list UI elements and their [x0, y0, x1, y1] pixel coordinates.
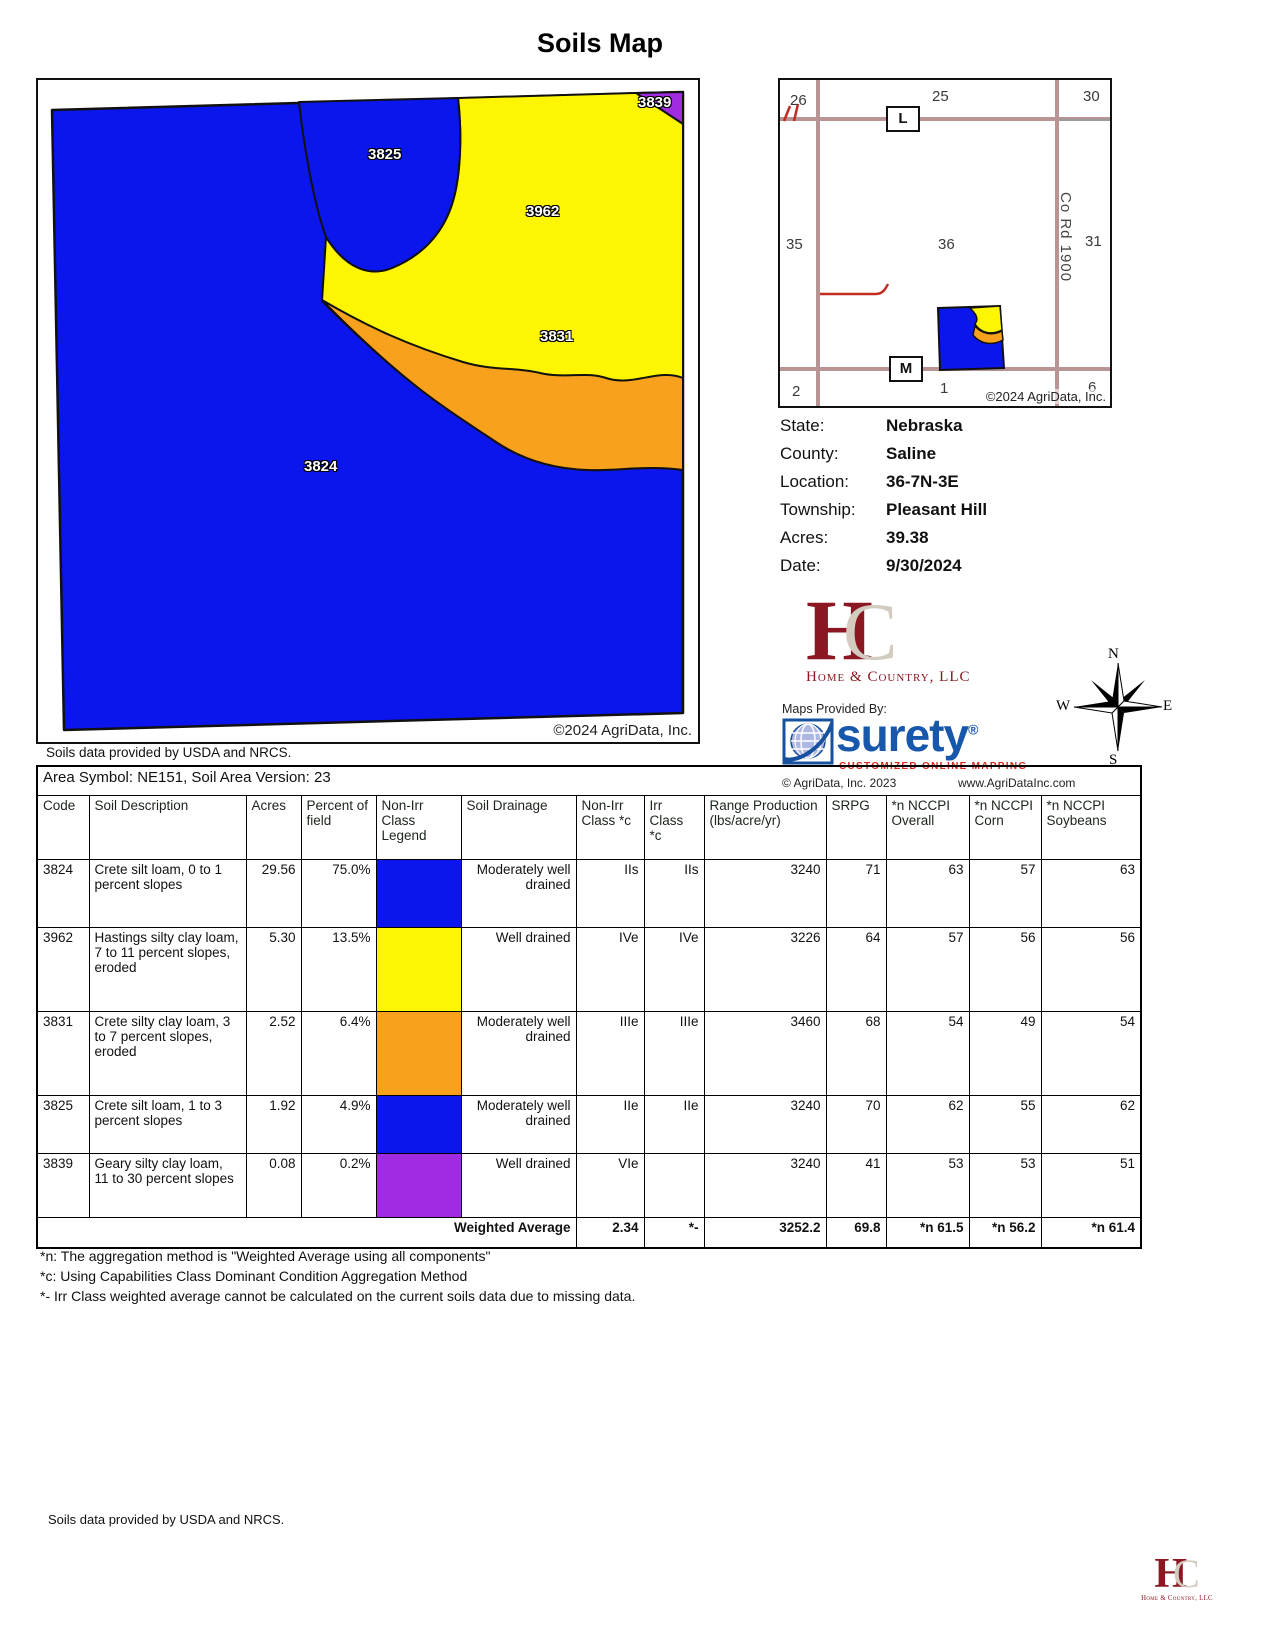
col-header-legend: Non-Irr Class Legend: [376, 796, 461, 860]
info-label: Location:: [780, 468, 886, 496]
table-area-header-row: Area Symbol: NE151, Soil Area Version: 2…: [37, 766, 1141, 796]
section-number: 36: [938, 236, 955, 253]
footnote: *c: Using Capabilities Class Dominant Co…: [40, 1266, 635, 1286]
weighted-average-row: Weighted Average 2.34 *- 3252.2 69.8 *n …: [37, 1218, 1141, 1248]
col-header-nccpi-overall: *n NCCPI Overall: [886, 796, 969, 860]
cell-range: 3240: [704, 860, 826, 928]
col-header-acres: Acres: [246, 796, 301, 860]
cell-acres: 0.08: [246, 1154, 301, 1218]
cell-code: 3831: [37, 1012, 89, 1096]
map-copyright: ©2024 AgriData, Inc.: [553, 722, 692, 739]
cell-nonirr: IIe: [576, 1096, 644, 1154]
cell-irr: IIs: [644, 860, 704, 928]
cell-drainage: Moderately well drained: [461, 1096, 576, 1154]
section-number: 35: [786, 236, 803, 253]
cell-soybeans: 62: [1041, 1096, 1141, 1154]
col-header-nccpi-corn: *n NCCPI Corn: [969, 796, 1041, 860]
cell-acres: 29.56: [246, 860, 301, 928]
col-header-percent: Percent of field: [301, 796, 376, 860]
red-road-mark: [820, 284, 888, 294]
info-row: Date:9/30/2024: [780, 552, 987, 580]
hc-logo-name: Home & Country, LLC: [806, 669, 971, 686]
cell-soybeans: 56: [1041, 928, 1141, 1012]
cell-drainage: Moderately well drained: [461, 860, 576, 928]
hc-logo-c: C: [1173, 1551, 1200, 1596]
usda-note: Soils data provided by USDA and NRCS.: [46, 745, 291, 760]
cell-corn: 55: [969, 1096, 1041, 1154]
cell-overall: *n 61.5: [886, 1218, 969, 1248]
info-value: 36-7N-3E: [886, 472, 959, 491]
info-label: Date:: [780, 552, 886, 580]
compass-star: [1068, 651, 1168, 763]
cell-percent: 4.9%: [301, 1096, 376, 1154]
cell-legend-swatch: [376, 1154, 461, 1218]
cell-nonirr: IIIe: [576, 1012, 644, 1096]
info-row: Acres:39.38: [780, 524, 987, 552]
cell-description: Hastings silty clay loam, 7 to 11 percen…: [89, 928, 246, 1012]
col-header-drainage: Soil Drainage: [461, 796, 576, 860]
road-marker-l: L: [886, 106, 920, 132]
cell-legend-swatch: [376, 1096, 461, 1154]
cell-legend-swatch: [376, 1012, 461, 1096]
cell-range: 3226: [704, 928, 826, 1012]
soils-map: 3825 3962 3831 3824 3839 ©2024 AgriData,…: [36, 78, 700, 744]
cell-srpg: 64: [826, 928, 886, 1012]
soil-region-label: 3831: [540, 328, 573, 345]
cell-code: 3839: [37, 1154, 89, 1218]
info-label: State:: [780, 412, 886, 440]
info-value: Nebraska: [886, 416, 963, 435]
cell-irr: *-: [644, 1218, 704, 1248]
cell-acres: 5.30: [246, 928, 301, 1012]
cell-drainage: Well drained: [461, 928, 576, 1012]
cell-percent: 75.0%: [301, 860, 376, 928]
area-symbol-header: Area Symbol: NE151, Soil Area Version: 2…: [37, 766, 1141, 796]
cell-overall: 57: [886, 928, 969, 1012]
field-inset: [938, 306, 1004, 370]
cell-irr: IVe: [644, 928, 704, 1012]
road-name-label: Co Rd 1900: [1057, 192, 1074, 282]
usda-note-footer: Soils data provided by USDA and NRCS.: [48, 1512, 284, 1527]
compass-east-label: E: [1163, 698, 1172, 715]
soil-region-label: 3825: [368, 146, 401, 163]
cell-code: 3824: [37, 860, 89, 928]
info-value: Pleasant Hill: [886, 500, 987, 519]
page-title: Soils Map: [0, 28, 1200, 59]
cell-acres: 1.92: [246, 1096, 301, 1154]
surety-wordmark: surety®: [836, 708, 977, 762]
table-row: 3839 Geary silty clay loam, 11 to 30 per…: [37, 1154, 1141, 1218]
road-marker-m: M: [889, 356, 923, 382]
footnote: *- Irr Class weighted average cannot be …: [40, 1286, 635, 1306]
cell-overall: 62: [886, 1096, 969, 1154]
cell-corn: *n 56.2: [969, 1218, 1041, 1248]
cell-description: Crete silt loam, 0 to 1 percent slopes: [89, 860, 246, 928]
cell-legend-swatch: [376, 860, 461, 928]
col-header-nccpi-soybeans: *n NCCPI Soybeans: [1041, 796, 1141, 860]
cell-corn: 49: [969, 1012, 1041, 1096]
soils-table: Area Symbol: NE151, Soil Area Version: 2…: [36, 765, 1142, 1249]
cell-irr: IIe: [644, 1096, 704, 1154]
info-label: County:: [780, 440, 886, 468]
cell-srpg: 70: [826, 1096, 886, 1154]
info-row: Location:36-7N-3E: [780, 468, 987, 496]
col-header-srpg: SRPG: [826, 796, 886, 860]
soil-region-label: 3824: [304, 458, 337, 475]
info-value: 39.38: [886, 528, 929, 547]
table-row: 3825 Crete silt loam, 1 to 3 percent slo…: [37, 1096, 1141, 1154]
cell-percent: 13.5%: [301, 928, 376, 1012]
table-row: 3962 Hastings silty clay loam, 7 to 11 p…: [37, 928, 1141, 1012]
cell-acres: 2.52: [246, 1012, 301, 1096]
col-header-soil-description: Soil Description: [89, 796, 246, 860]
cell-range: 3252.2: [704, 1218, 826, 1248]
cell-drainage: Well drained: [461, 1154, 576, 1218]
compass-west-label: W: [1056, 698, 1070, 715]
col-header-irr-class: Irr Class *c: [644, 796, 704, 860]
section-number: 31: [1085, 233, 1102, 250]
info-label: Township:: [780, 496, 886, 524]
cell-nonirr: VIe: [576, 1154, 644, 1218]
cell-drainage: Moderately well drained: [461, 1012, 576, 1096]
section-number: 25: [932, 88, 949, 105]
compass-north-label: N: [1108, 646, 1119, 663]
cell-overall: 54: [886, 1012, 969, 1096]
footnote: *n: The aggregation method is "Weighted …: [40, 1246, 635, 1266]
parcel-info: State:Nebraska County:Saline Location:36…: [780, 412, 987, 580]
info-row: County:Saline: [780, 440, 987, 468]
soils-map-field: [38, 80, 698, 742]
cell-srpg: 69.8: [826, 1218, 886, 1248]
info-label: Acres:: [780, 524, 886, 552]
soil-region-label: 3962: [526, 203, 559, 220]
home-country-logo: HC Home & Country, LLC: [806, 592, 971, 686]
registered-mark: ®: [968, 722, 977, 738]
cell-irr: [644, 1154, 704, 1218]
cell-code: 3962: [37, 928, 89, 1012]
cell-soybeans: 51: [1041, 1154, 1141, 1218]
cell-description: Crete silty clay loam, 3 to 7 percent sl…: [89, 1012, 246, 1096]
cell-code: 3825: [37, 1096, 89, 1154]
table-row: 3824 Crete silt loam, 0 to 1 percent slo…: [37, 860, 1141, 928]
location-map: 26 25 30 35 36 31 2 1 6 L M Co Rd 1900 ©…: [778, 78, 1112, 408]
home-country-logo-small: HC Home & Country, LLC: [1122, 1556, 1232, 1602]
cell-legend-swatch: [376, 928, 461, 1012]
table-header-row: Code Soil Description Acres Percent of f…: [37, 796, 1141, 860]
footnotes: *n: The aggregation method is "Weighted …: [40, 1246, 635, 1306]
cell-range: 3460: [704, 1012, 826, 1096]
cell-range: 3240: [704, 1096, 826, 1154]
col-header-nonirr-class: Non-Irr Class *c: [576, 796, 644, 860]
cell-range: 3240: [704, 1154, 826, 1218]
cell-corn: 56: [969, 928, 1041, 1012]
info-value: Saline: [886, 444, 936, 463]
weighted-average-label: Weighted Average: [37, 1218, 576, 1248]
table-row: 3831 Crete silty clay loam, 3 to 7 perce…: [37, 1012, 1141, 1096]
section-number: 2: [792, 383, 800, 400]
hc-logo-name: Home & Country, LLC: [1122, 1595, 1232, 1602]
section-number: 30: [1083, 88, 1100, 105]
cell-soybeans: 54: [1041, 1012, 1141, 1096]
cell-nonirr: IIs: [576, 860, 644, 928]
cell-irr: IIIe: [644, 1012, 704, 1096]
info-value: 9/30/2024: [886, 556, 962, 575]
cell-nonirr: IVe: [576, 928, 644, 1012]
compass-rose: N E S W: [1058, 650, 1173, 768]
cell-corn: 53: [969, 1154, 1041, 1218]
cell-description: Geary silty clay loam, 11 to 30 percent …: [89, 1154, 246, 1218]
info-row: State:Nebraska: [780, 412, 987, 440]
section-number: 1: [940, 380, 948, 397]
cell-overall: 63: [886, 860, 969, 928]
cell-corn: 57: [969, 860, 1041, 928]
info-row: Township:Pleasant Hill: [780, 496, 987, 524]
cell-overall: 53: [886, 1154, 969, 1218]
location-map-copyright: ©2024 AgriData, Inc.: [986, 389, 1106, 404]
cell-soybeans: 63: [1041, 860, 1141, 928]
cell-srpg: 71: [826, 860, 886, 928]
cell-nonirr: 2.34: [576, 1218, 644, 1248]
soils-report-page: Soils Map 3825 3962 3831 3824 3839 ©2024…: [0, 0, 1275, 1650]
section-number: 26: [790, 92, 807, 109]
cell-soybeans: *n 61.4: [1041, 1218, 1141, 1248]
col-header-range-production: Range Production (lbs/acre/yr): [704, 796, 826, 860]
cell-percent: 6.4%: [301, 1012, 376, 1096]
cell-description: Crete silt loam, 1 to 3 percent slopes: [89, 1096, 246, 1154]
hc-logo-c: C: [843, 586, 898, 677]
col-header-code: Code: [37, 796, 89, 860]
surety-globe-icon: [782, 718, 834, 766]
cell-percent: 0.2%: [301, 1154, 376, 1218]
cell-srpg: 41: [826, 1154, 886, 1218]
soil-region-label: 3839: [638, 94, 671, 111]
cell-srpg: 68: [826, 1012, 886, 1096]
